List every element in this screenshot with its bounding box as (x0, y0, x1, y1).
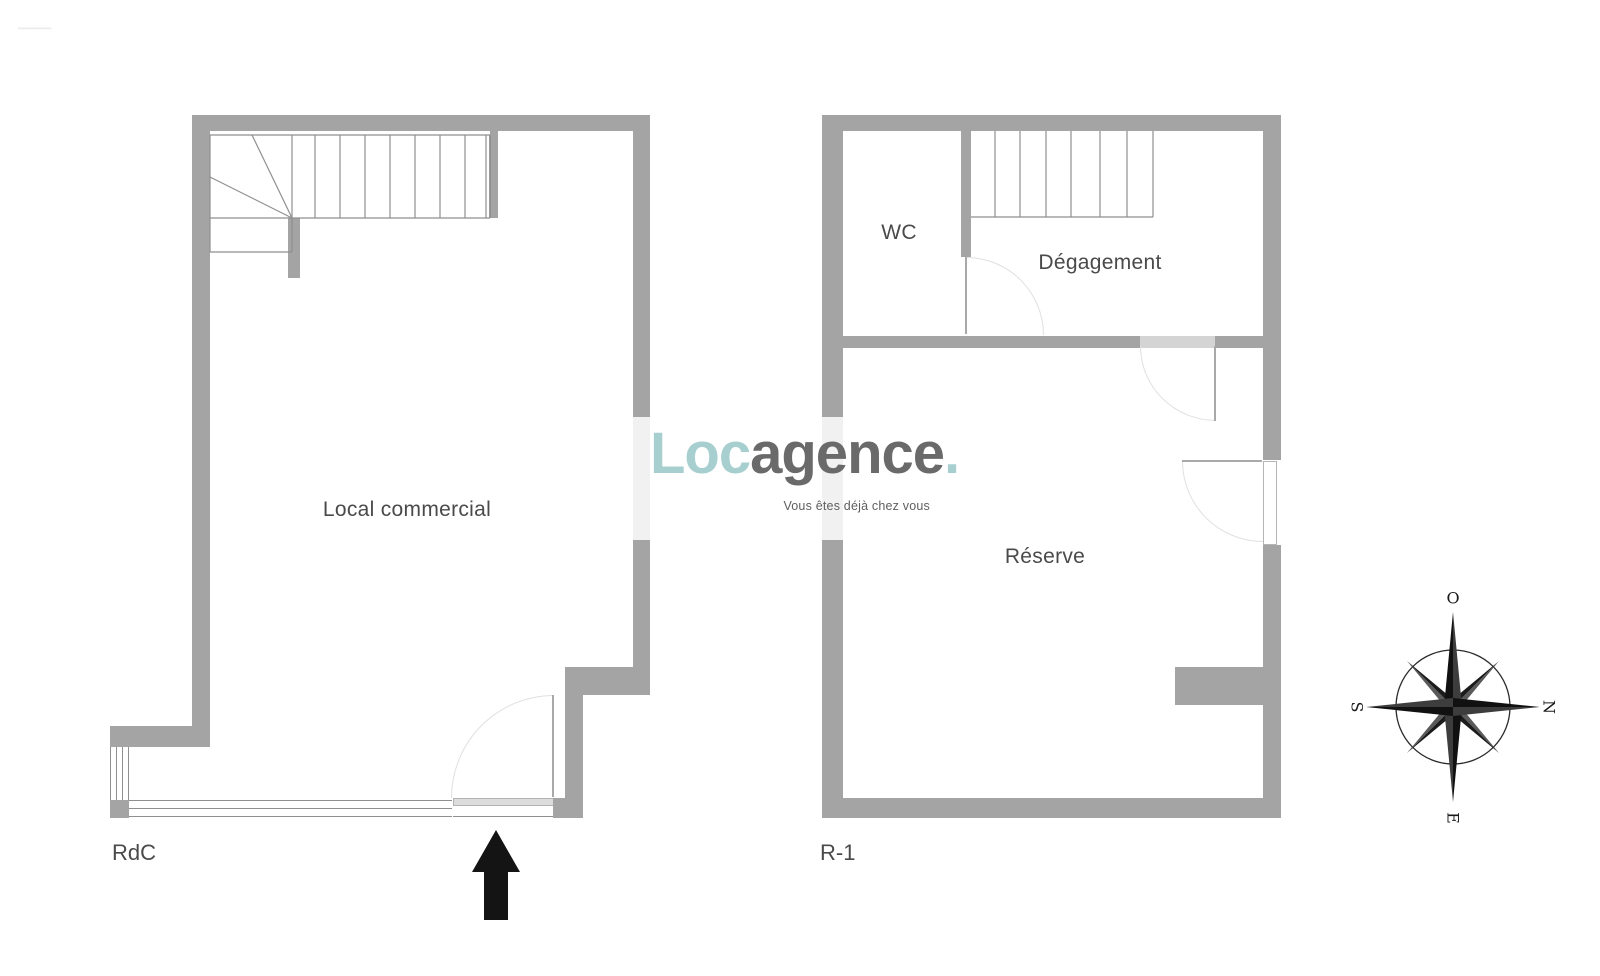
rdc-top-wall (192, 115, 650, 131)
logo-box: Locagence. Vous êtes déjà chez vous (628, 417, 950, 540)
compass-letter-south: S (1348, 702, 1367, 713)
rdc-right-wall (633, 131, 650, 695)
rdc-right-lower-wall (565, 695, 583, 798)
rdc-right-step-wall (565, 667, 650, 695)
r1-right-door-frame (1263, 461, 1277, 545)
rdc-door-threshold-wall (553, 798, 583, 818)
entrance-arrow-shape (472, 830, 520, 920)
r1-mid-wall-right (1215, 336, 1263, 348)
floor-plan-page: ···················· (0, 0, 1600, 976)
rdc-left-step-wall (110, 726, 210, 747)
r1-right-door-leaf (1182, 460, 1262, 462)
r1-mid-door-leaf (1214, 346, 1216, 421)
r1-mid-wall-left (843, 336, 1140, 348)
compass-letter-west: O (1446, 589, 1459, 608)
rdc-room-label: Local commercial (297, 498, 517, 522)
r1-right-wall-upper (1263, 131, 1281, 460)
rdc-entrance-sill (453, 798, 554, 806)
rdc-staircase (208, 133, 494, 254)
logo-text-loc: Loc (650, 421, 750, 486)
r1-wc-label: WC (869, 221, 929, 245)
rdc-storefront-line (129, 816, 452, 817)
rdc-left-window-line (110, 747, 111, 800)
locagence-logo: Locagence. (650, 425, 959, 483)
rdc-left-window-line (122, 747, 123, 800)
r1-floor-label: R-1 (820, 840, 855, 866)
r1-mid-door-arc (1140, 346, 1216, 421)
r1-staircase-lines (971, 131, 1153, 217)
rdc-floor-label: RdC (112, 840, 156, 866)
watermark-text: ···················· (18, 26, 51, 32)
rdc-storefront-line (129, 808, 452, 809)
rdc-storefront-line (129, 800, 452, 801)
rdc-entrance-door-arc (451, 695, 554, 798)
r1-wall-pier (1175, 667, 1263, 705)
r1-right-door-arc (1182, 461, 1263, 542)
compass-star (1366, 612, 1540, 802)
compass-rose: O N E S (1338, 572, 1578, 832)
entrance-arrow-icon (470, 828, 522, 924)
r1-reserve-label: Réserve (965, 545, 1125, 569)
logo-text-dot: . (944, 421, 959, 486)
rdc-staircase-lines (210, 135, 490, 252)
compass-letter-east: E (1444, 812, 1463, 824)
rdc-left-window-line (128, 747, 129, 800)
r1-degagement-label: Dégagement (1010, 251, 1190, 275)
r1-wc-door-leaf (965, 257, 967, 334)
logo-text-agence: agence (750, 421, 944, 486)
rdc-corner-block (110, 800, 129, 818)
logo-tagline: Vous êtes déjà chez vous (670, 499, 930, 513)
r1-right-wall-lower (1263, 545, 1281, 798)
r1-bottom-wall (843, 798, 1281, 818)
rdc-left-window-line (116, 747, 117, 800)
r1-staircase (969, 129, 1155, 220)
compass-letter-north: N (1540, 700, 1559, 714)
rdc-entrance-door-leaf (552, 695, 554, 797)
rdc-entrance-bottom-line (453, 816, 553, 817)
